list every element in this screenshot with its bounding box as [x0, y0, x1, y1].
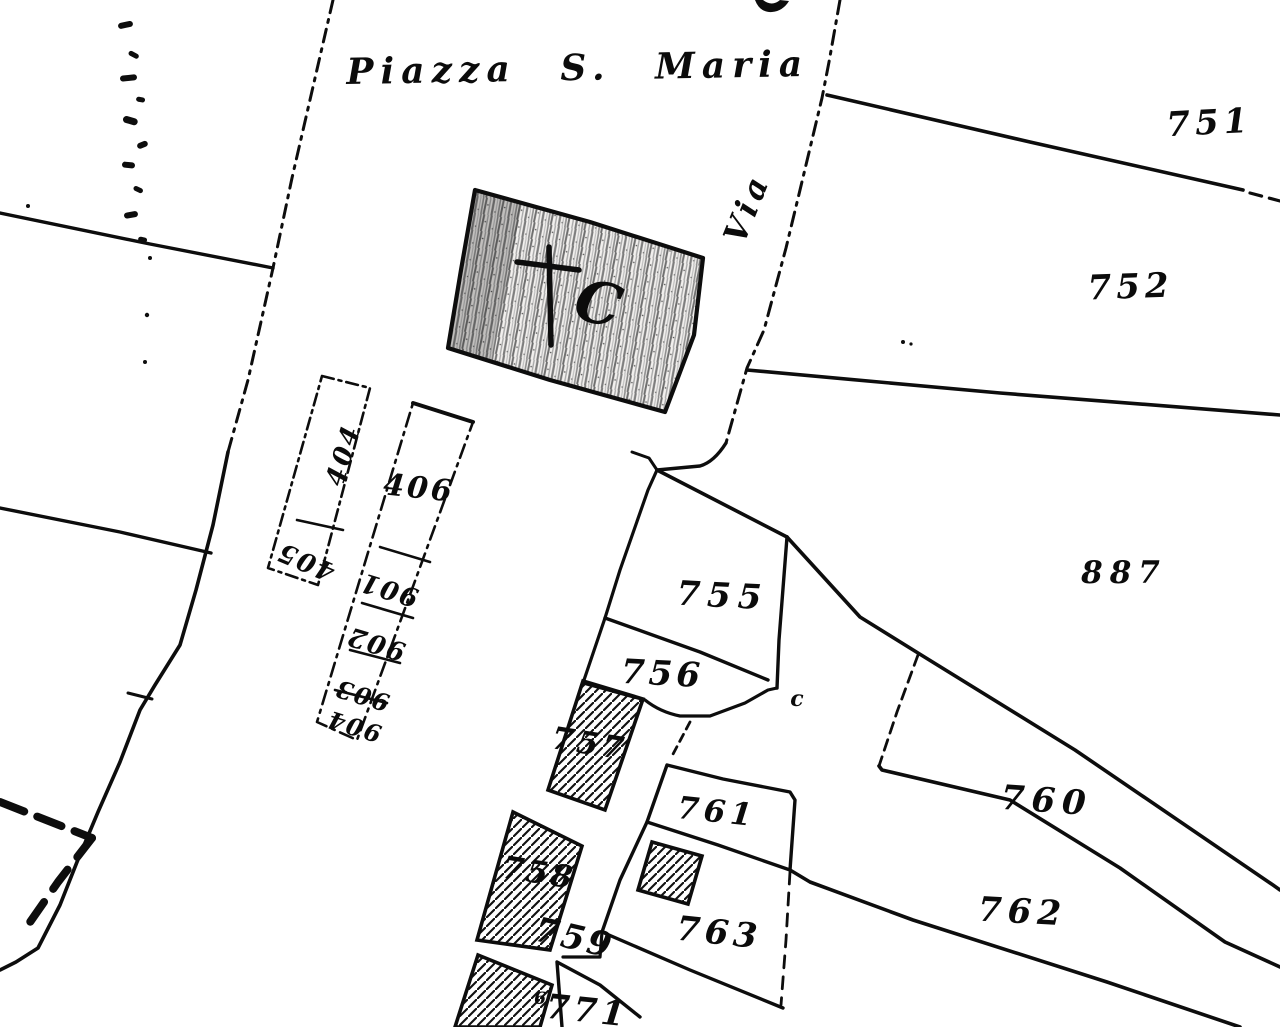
stray-mark-c: c	[790, 686, 804, 712]
parcel-label-771: 771	[544, 987, 631, 1027]
road-gap-dashed-segment	[672, 722, 690, 756]
parcel-label-752: 752	[1087, 266, 1174, 309]
map-labels: Piazza S. Maria Via C 751 752 887 755 75…	[272, 43, 1253, 1027]
cutoff-symbol-top-edge	[755, 0, 789, 12]
boundary-887-south-line	[787, 537, 1280, 890]
parcel-label-760: 760	[999, 778, 1094, 824]
speck	[143, 360, 147, 364]
smudge-mark	[124, 211, 139, 219]
stray-mark-six: 6	[534, 989, 546, 1009]
parcel-label-751: 751	[1165, 101, 1253, 145]
parcel-755-northeast-edge	[657, 470, 787, 537]
boundary-lines	[0, 0, 1280, 1027]
parcel-763-east-dashed-edge	[781, 872, 790, 1005]
parcel-label-756: 756	[620, 652, 705, 696]
smudge-mark	[136, 140, 148, 150]
parcel-755-corner-tick	[632, 452, 657, 470]
heavy-dashed-boundary-a	[0, 802, 92, 838]
west-boundary-lower-line	[0, 508, 211, 553]
dashed-drop-887-760	[879, 655, 918, 766]
parcel-label-759: 759	[531, 910, 618, 967]
parcel-label-763: 763	[674, 909, 764, 958]
smudge-mark	[122, 161, 136, 168]
smudge-mark	[120, 74, 138, 82]
smudge-mark	[118, 20, 134, 29]
cadastral-map-canvas: Piazza S. Maria Via C 751 752 887 755 75…	[0, 0, 1280, 1027]
parcel-label-761: 761	[676, 790, 759, 834]
street-label-via: Via	[716, 167, 778, 248]
parcel-label-887: 887	[1080, 555, 1167, 591]
speck	[909, 342, 912, 345]
building-label-406: 406	[382, 467, 457, 509]
via-junction-line	[657, 443, 726, 470]
smudge-mark	[128, 50, 140, 60]
parcel-755-west-edge	[583, 470, 657, 683]
strip-divider-406-901	[380, 547, 430, 562]
boundary-752-887-line	[747, 370, 1280, 415]
smudge-mark	[133, 185, 144, 194]
speck	[148, 256, 152, 260]
cadastral-map-svg: Piazza S. Maria Via C 751 752 887 755 75…	[0, 0, 1280, 1027]
parcel-755-east-edge	[777, 537, 787, 688]
piazza-left-dashdot-line	[228, 0, 333, 452]
speck	[26, 204, 30, 208]
building-763-inner-hatched	[638, 842, 702, 904]
parcel-label-762: 762	[977, 890, 1068, 935]
strip-406-top-edge	[413, 403, 473, 422]
smudge-mark	[122, 115, 138, 126]
heavy-dashed-boundary-b	[28, 838, 92, 925]
parcel-label-755: 755	[676, 574, 770, 619]
building-label-404: 404	[320, 420, 367, 489]
strip-404-405-divider	[297, 520, 343, 530]
smudge-mark	[136, 96, 146, 102]
street-label-piazza: Piazza S. Maria	[345, 43, 809, 93]
boundary-751-752-dashed-end	[1250, 193, 1280, 201]
speck	[145, 313, 149, 317]
west-boundary-upper-line	[0, 213, 273, 268]
speck	[901, 340, 905, 344]
